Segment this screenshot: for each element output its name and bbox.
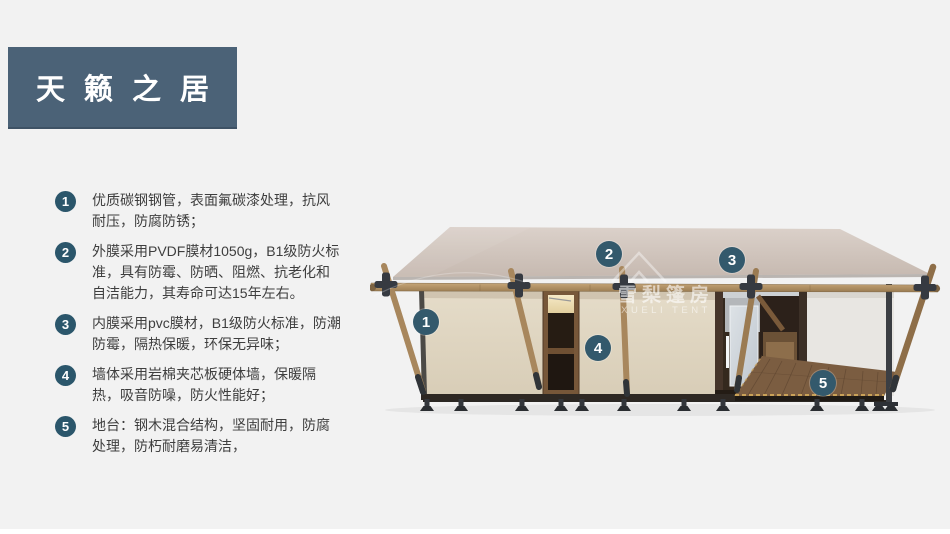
feature-item: 4 墙体采用岩棉夹芯板硬体墙，保暖隔热，吸音防噪，防火性能好； [55, 364, 375, 406]
callout-3: 3 [719, 247, 745, 273]
page-title: 天籁之居 [17, 66, 228, 108]
feature-number-badge: 2 [55, 242, 76, 263]
tent-illustration: 雪梨篷房 XUELI TENT [370, 205, 950, 440]
feature-text: 外膜采用PVDF膜材1050g，B1级防火标准，具有防霉、防晒、阻燃、抗老化和自… [92, 241, 342, 304]
title-block: 天籁之居 [8, 47, 237, 129]
callout-2: 2 [596, 241, 622, 267]
watermark-en: XUELI TENT [621, 305, 711, 316]
feature-number-badge: 1 [55, 191, 76, 212]
feature-item: 1 优质碳钢钢管，表面氟碳漆处理，抗风耐压，防腐防锈； [55, 190, 375, 232]
feature-text: 墙体采用岩棉夹芯板硬体墙，保暖隔热，吸音防噪，防火性能好； [92, 364, 342, 406]
watermark-cn: 雪梨篷房 [618, 283, 714, 306]
callout-5: 5 [810, 370, 836, 396]
feature-item: 3 内膜采用pvc膜材，B1级防火标准，防潮防霉，隔热保暖，环保无异味； [55, 313, 375, 355]
feature-text: 优质碳钢钢管，表面氟碳漆处理，抗风耐压，防腐防锈； [92, 190, 342, 232]
feature-list: 1 优质碳钢钢管，表面氟碳漆处理，抗风耐压，防腐防锈； 2 外膜采用PVDF膜材… [55, 190, 375, 466]
feature-text: 地台：钢木混合结构，坚固耐用，防腐处理，防朽耐磨易清洁， [92, 415, 342, 457]
feature-number-badge: 4 [55, 365, 76, 386]
feature-number-badge: 3 [55, 314, 76, 335]
callout-4: 4 [585, 335, 611, 361]
entry-door [543, 291, 579, 395]
feature-number-badge: 5 [55, 416, 76, 437]
ground-shadow [385, 404, 935, 416]
slide: 天籁之居 1 优质碳钢钢管，表面氟碳漆处理，抗风耐压，防腐防锈； 2 外膜采用P… [0, 0, 950, 534]
roof [393, 227, 930, 280]
feature-item: 5 地台：钢木混合结构，坚固耐用，防腐处理，防朽耐磨易清洁， [55, 415, 375, 457]
feature-text: 内膜采用pvc膜材，B1级防火标准，防潮防霉，隔热保暖，环保无异味； [92, 313, 342, 355]
feature-item: 2 外膜采用PVDF膜材1050g，B1级防火标准，具有防霉、防晒、阻燃、抗老化… [55, 241, 375, 304]
callout-1: 1 [413, 309, 439, 335]
